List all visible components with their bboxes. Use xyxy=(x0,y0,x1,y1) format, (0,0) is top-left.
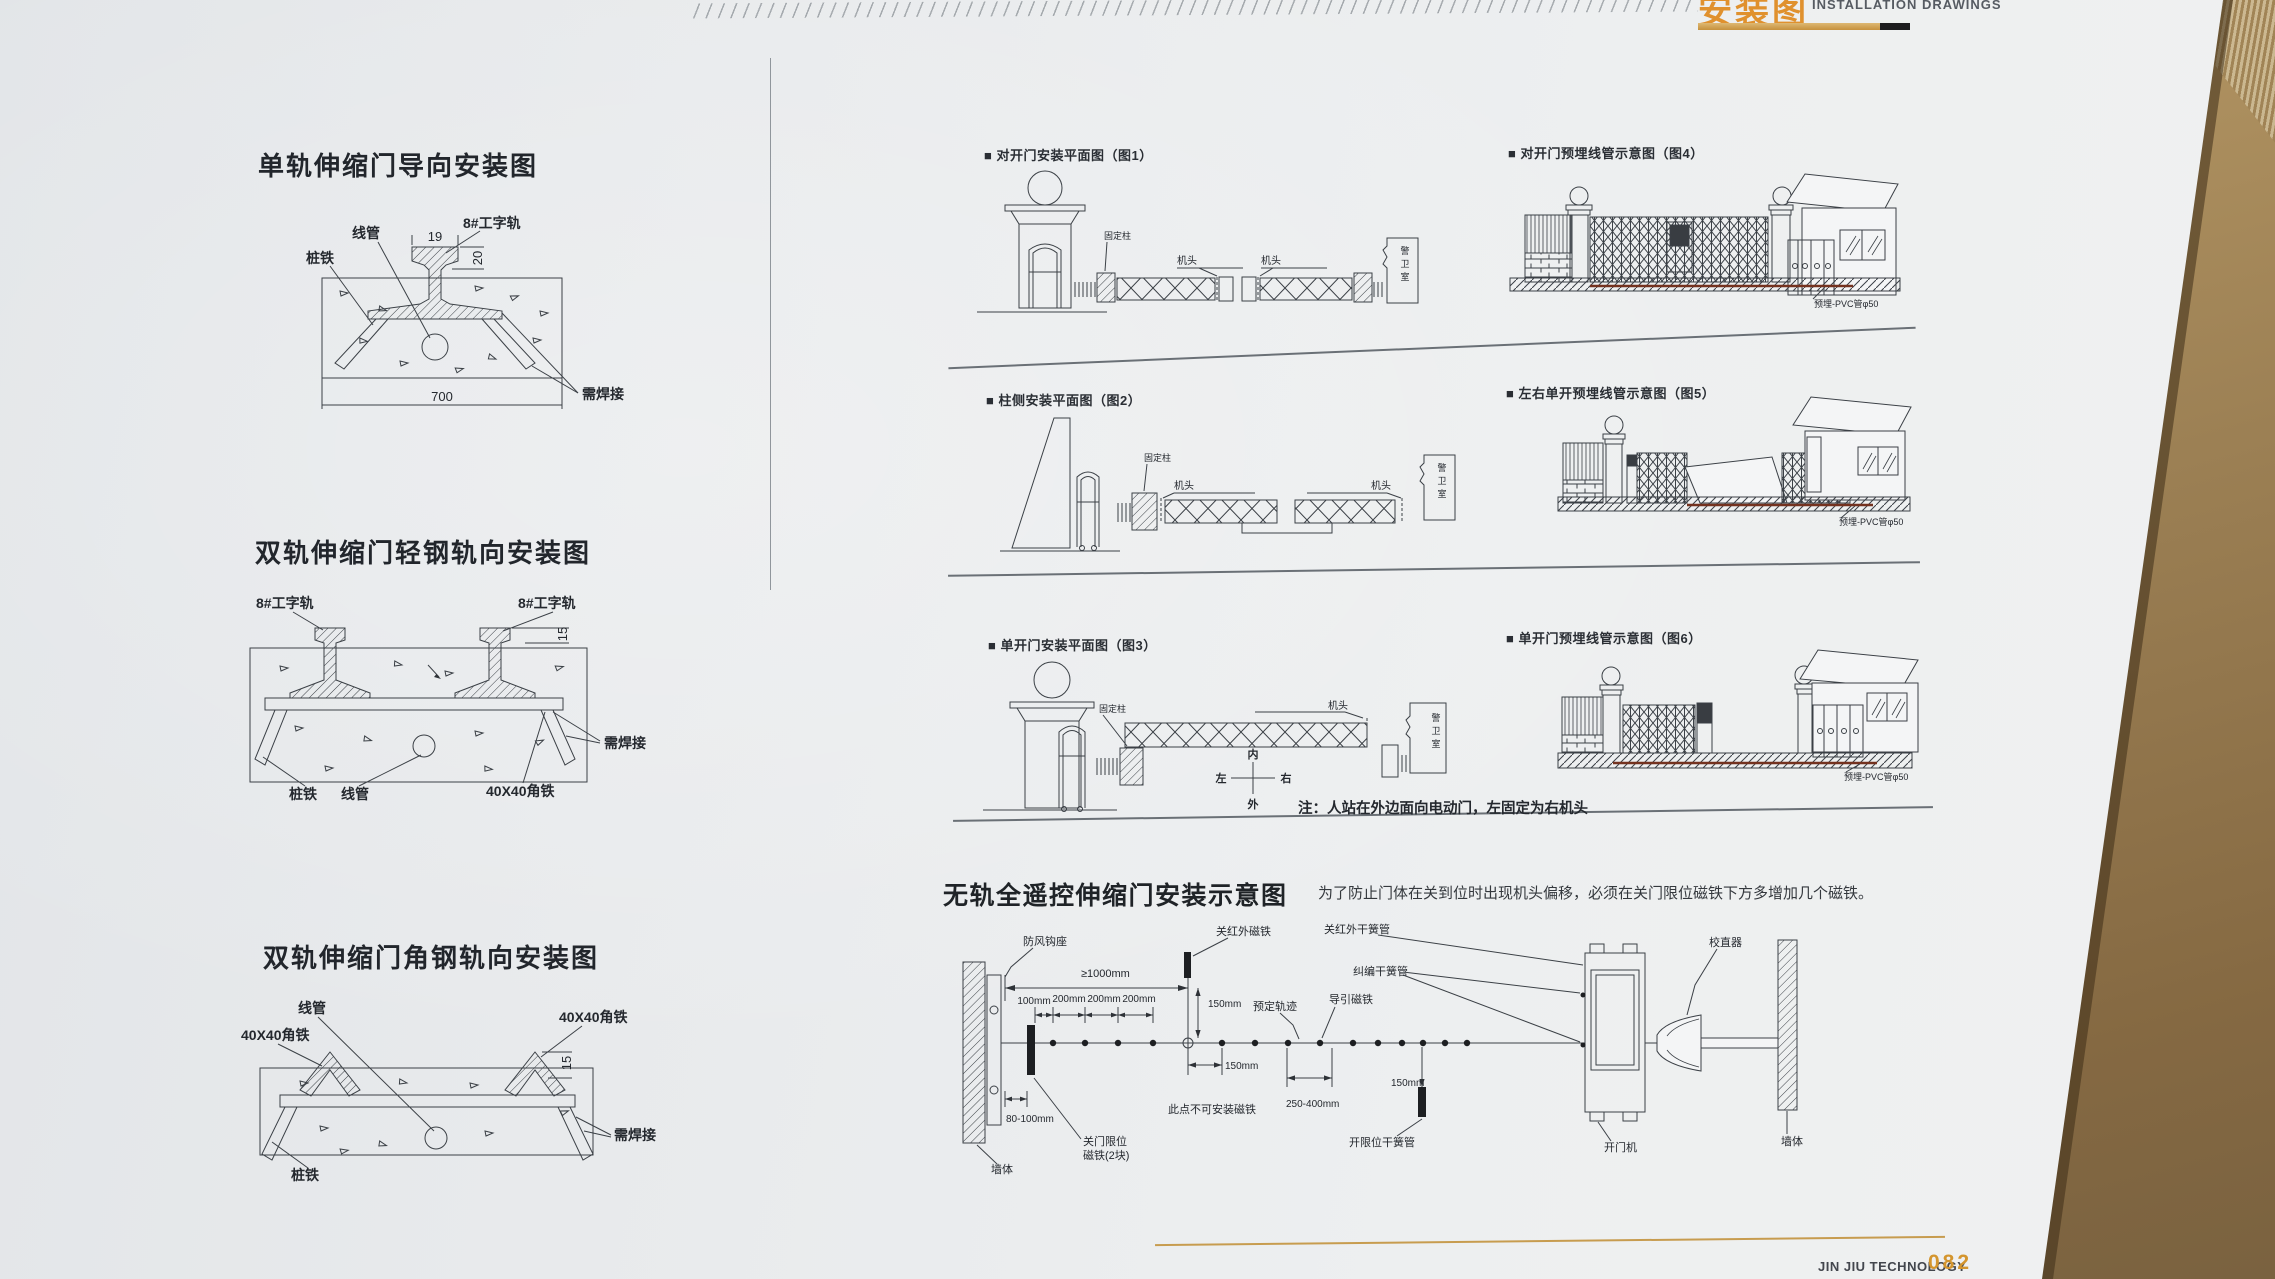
label-wind-hook: 防风钩座 xyxy=(1023,934,1067,948)
photo-background: 安装图 INSTALLATION DRAWINGS 单轨伸缩门导向安装图 19 … xyxy=(0,0,2275,1279)
label-stake: 桩铁 xyxy=(291,1167,319,1183)
guard-room-char1: 警 xyxy=(1400,245,1409,256)
label-fixed-post: 固定柱 xyxy=(1144,452,1171,463)
diagram2-title: 双轨伸缩门轻钢轨向安装图 xyxy=(255,533,591,570)
label-head-left: 机头 xyxy=(1177,254,1197,267)
label-head-right: 机头 xyxy=(1261,254,1281,267)
figure6-drawing: 预埋-PVC管φ50 xyxy=(1500,635,1930,793)
row-divider-1 xyxy=(948,327,1915,369)
label-fixed-post: 固定柱 xyxy=(1104,230,1131,241)
label-close-limit-magnet-2: 磁铁(2块) xyxy=(1083,1149,1129,1162)
compass-inner: 内 xyxy=(1248,747,1259,761)
header-gold-bar-tip xyxy=(1880,23,1910,30)
dim-150mm-vertical: 150mm xyxy=(1208,999,1241,1010)
guard-room-char3: 室 xyxy=(1437,488,1446,499)
figure4-drawing: 预埋-PVC管φ50 xyxy=(1500,160,1930,318)
trackless-gate-magnet-layout: 防风钩座 ≥1000mm 关红外磁铁 关红外干簧管 100mm 200mm 20… xyxy=(935,915,1845,1195)
guard-room-char3: 室 xyxy=(1400,271,1409,282)
label-stake: 桩铁 xyxy=(289,786,317,802)
footer-page-number: 082 xyxy=(1928,1251,1972,1275)
label-angle: 40X40角铁 xyxy=(486,783,554,799)
label-pvc-pipe: 预埋-PVC管φ50 xyxy=(1844,771,1908,782)
label-open-limit-reed: 开限位干簧管 xyxy=(1349,1135,1415,1149)
guard-room-char2: 卫 xyxy=(1437,476,1446,486)
dim-15: 15 xyxy=(555,627,570,641)
dim-19: 19 xyxy=(428,229,442,244)
row-divider-2 xyxy=(948,561,1920,576)
dim-15: 15 xyxy=(559,1056,574,1070)
dim-250-400mm: 250-400mm xyxy=(1286,1099,1339,1110)
label-wall-left: 墙体 xyxy=(991,1162,1013,1176)
compass-left: 左 xyxy=(1215,771,1227,785)
label-rail-right: 8#工字轨 xyxy=(518,595,576,611)
compass-right: 右 xyxy=(1280,771,1292,785)
bottom-section-title: 无轨全遥控伸缩门安装示意图 xyxy=(943,876,1288,912)
label-rail: 8#工字轨 xyxy=(463,215,521,231)
label-wall-right: 墙体 xyxy=(1781,1134,1803,1148)
guard-room-char1: 警 xyxy=(1437,462,1446,473)
label-opener: 开门机 xyxy=(1604,1140,1637,1154)
top-hatch-band xyxy=(688,0,1698,19)
label-rail-left: 8#工字轨 xyxy=(256,595,314,611)
label-pvc-pipe: 预埋-PVC管φ50 xyxy=(1839,516,1903,527)
label-guide-magnet: 导引磁铁 xyxy=(1329,992,1373,1006)
guard-room-char2: 卫 xyxy=(1431,726,1440,736)
figure2-drawing: 警 卫 室 固定柱 机头 机头 xyxy=(955,405,1470,563)
guard-room-char1: 警 xyxy=(1431,712,1440,723)
label-head-right: 机头 xyxy=(1371,479,1391,492)
diagram-single-rail-guide: 19 20 线管 8#工字轨 桩铁 需焊接 700 xyxy=(240,195,690,420)
page-header-english: INSTALLATION DRAWINGS xyxy=(1812,0,2002,12)
dim-20: 20 xyxy=(470,251,485,265)
dim-80-100mm: 80-100mm xyxy=(1006,1114,1054,1125)
label-conduit: 线管 xyxy=(298,1000,326,1016)
dim-100mm: 100mm xyxy=(1017,996,1050,1007)
label-angle-left: 40X40角铁 xyxy=(241,1027,309,1043)
dim-700: 700 xyxy=(431,389,453,404)
dim-200mm-1: 200mm xyxy=(1052,994,1085,1005)
guard-room-char3: 室 xyxy=(1431,738,1440,749)
dim-150mm-mid: 150mm xyxy=(1225,1061,1258,1072)
header-gold-bar xyxy=(1698,23,1880,30)
dim-200mm-2: 200mm xyxy=(1087,994,1120,1005)
guard-room-char2: 卫 xyxy=(1400,259,1409,269)
diagram1-title: 单轨伸缩门导向安装图 xyxy=(258,146,538,183)
label-conduit: 线管 xyxy=(352,225,380,241)
label-weld: 需焊接 xyxy=(614,1127,656,1143)
compass-outer: 外 xyxy=(1247,797,1259,811)
vertical-divider xyxy=(770,58,771,590)
dim-200mm-3: 200mm xyxy=(1122,994,1155,1005)
figure3-drawing: 警 卫 室 固定柱 机头 内 外 左 右 xyxy=(955,640,1475,820)
dim-1000mm: ≥1000mm xyxy=(1081,968,1130,980)
label-close-ir-magnet: 关红外磁铁 xyxy=(1216,924,1271,938)
label-no-magnet: 此点不可安装磁铁 xyxy=(1168,1102,1256,1116)
label-close-limit-magnet-1: 关门限位 xyxy=(1083,1134,1127,1148)
label-pvc-pipe: 预埋-PVC管φ50 xyxy=(1814,298,1878,309)
diagram-double-rail-angle-steel: 线管 40X40角铁 40X40角铁 15 需焊接 桩铁 xyxy=(230,990,685,1195)
catalog-page: 安装图 INSTALLATION DRAWINGS 单轨伸缩门导向安装图 19 … xyxy=(0,0,2275,1279)
label-track: 预定轨迹 xyxy=(1253,999,1297,1013)
label-conduit: 线管 xyxy=(341,786,369,802)
figure1-drawing: 警 卫 室 固定柱 机头 机头 xyxy=(955,150,1470,322)
label-head-left: 机头 xyxy=(1174,479,1194,492)
fig3-note: 注：人站在外边面向电动门，左固定为右机头 xyxy=(1298,797,1588,818)
label-fixed-post: 固定柱 xyxy=(1099,703,1126,714)
label-stake: 桩铁 xyxy=(306,250,334,266)
label-weld: 需焊接 xyxy=(604,735,646,751)
label-deviation-reed: 纠编干簧管 xyxy=(1353,964,1408,978)
bottom-section-note: 为了防止门体在关到位时出现机头偏移，必须在关门限位磁铁下方多增加几个磁铁。 xyxy=(1318,882,1873,903)
footer-gold-line xyxy=(1155,1236,1945,1246)
label-head: 机头 xyxy=(1328,699,1348,712)
label-weld: 需焊接 xyxy=(582,386,624,402)
diagram3-title: 双轨伸缩门角钢轨向安装图 xyxy=(263,938,599,975)
figure5-drawing: 预埋-PVC管φ50 xyxy=(1500,385,1930,543)
label-aligner: 校直器 xyxy=(1709,935,1742,949)
label-angle-right: 40X40角铁 xyxy=(559,1009,627,1025)
label-close-ir-reed: 关红外干簧管 xyxy=(1324,922,1390,936)
diagram-double-rail-light-steel: 8#工字轨 8#工字轨 15 需焊接 桩铁 线管 40X40角铁 xyxy=(235,585,690,817)
